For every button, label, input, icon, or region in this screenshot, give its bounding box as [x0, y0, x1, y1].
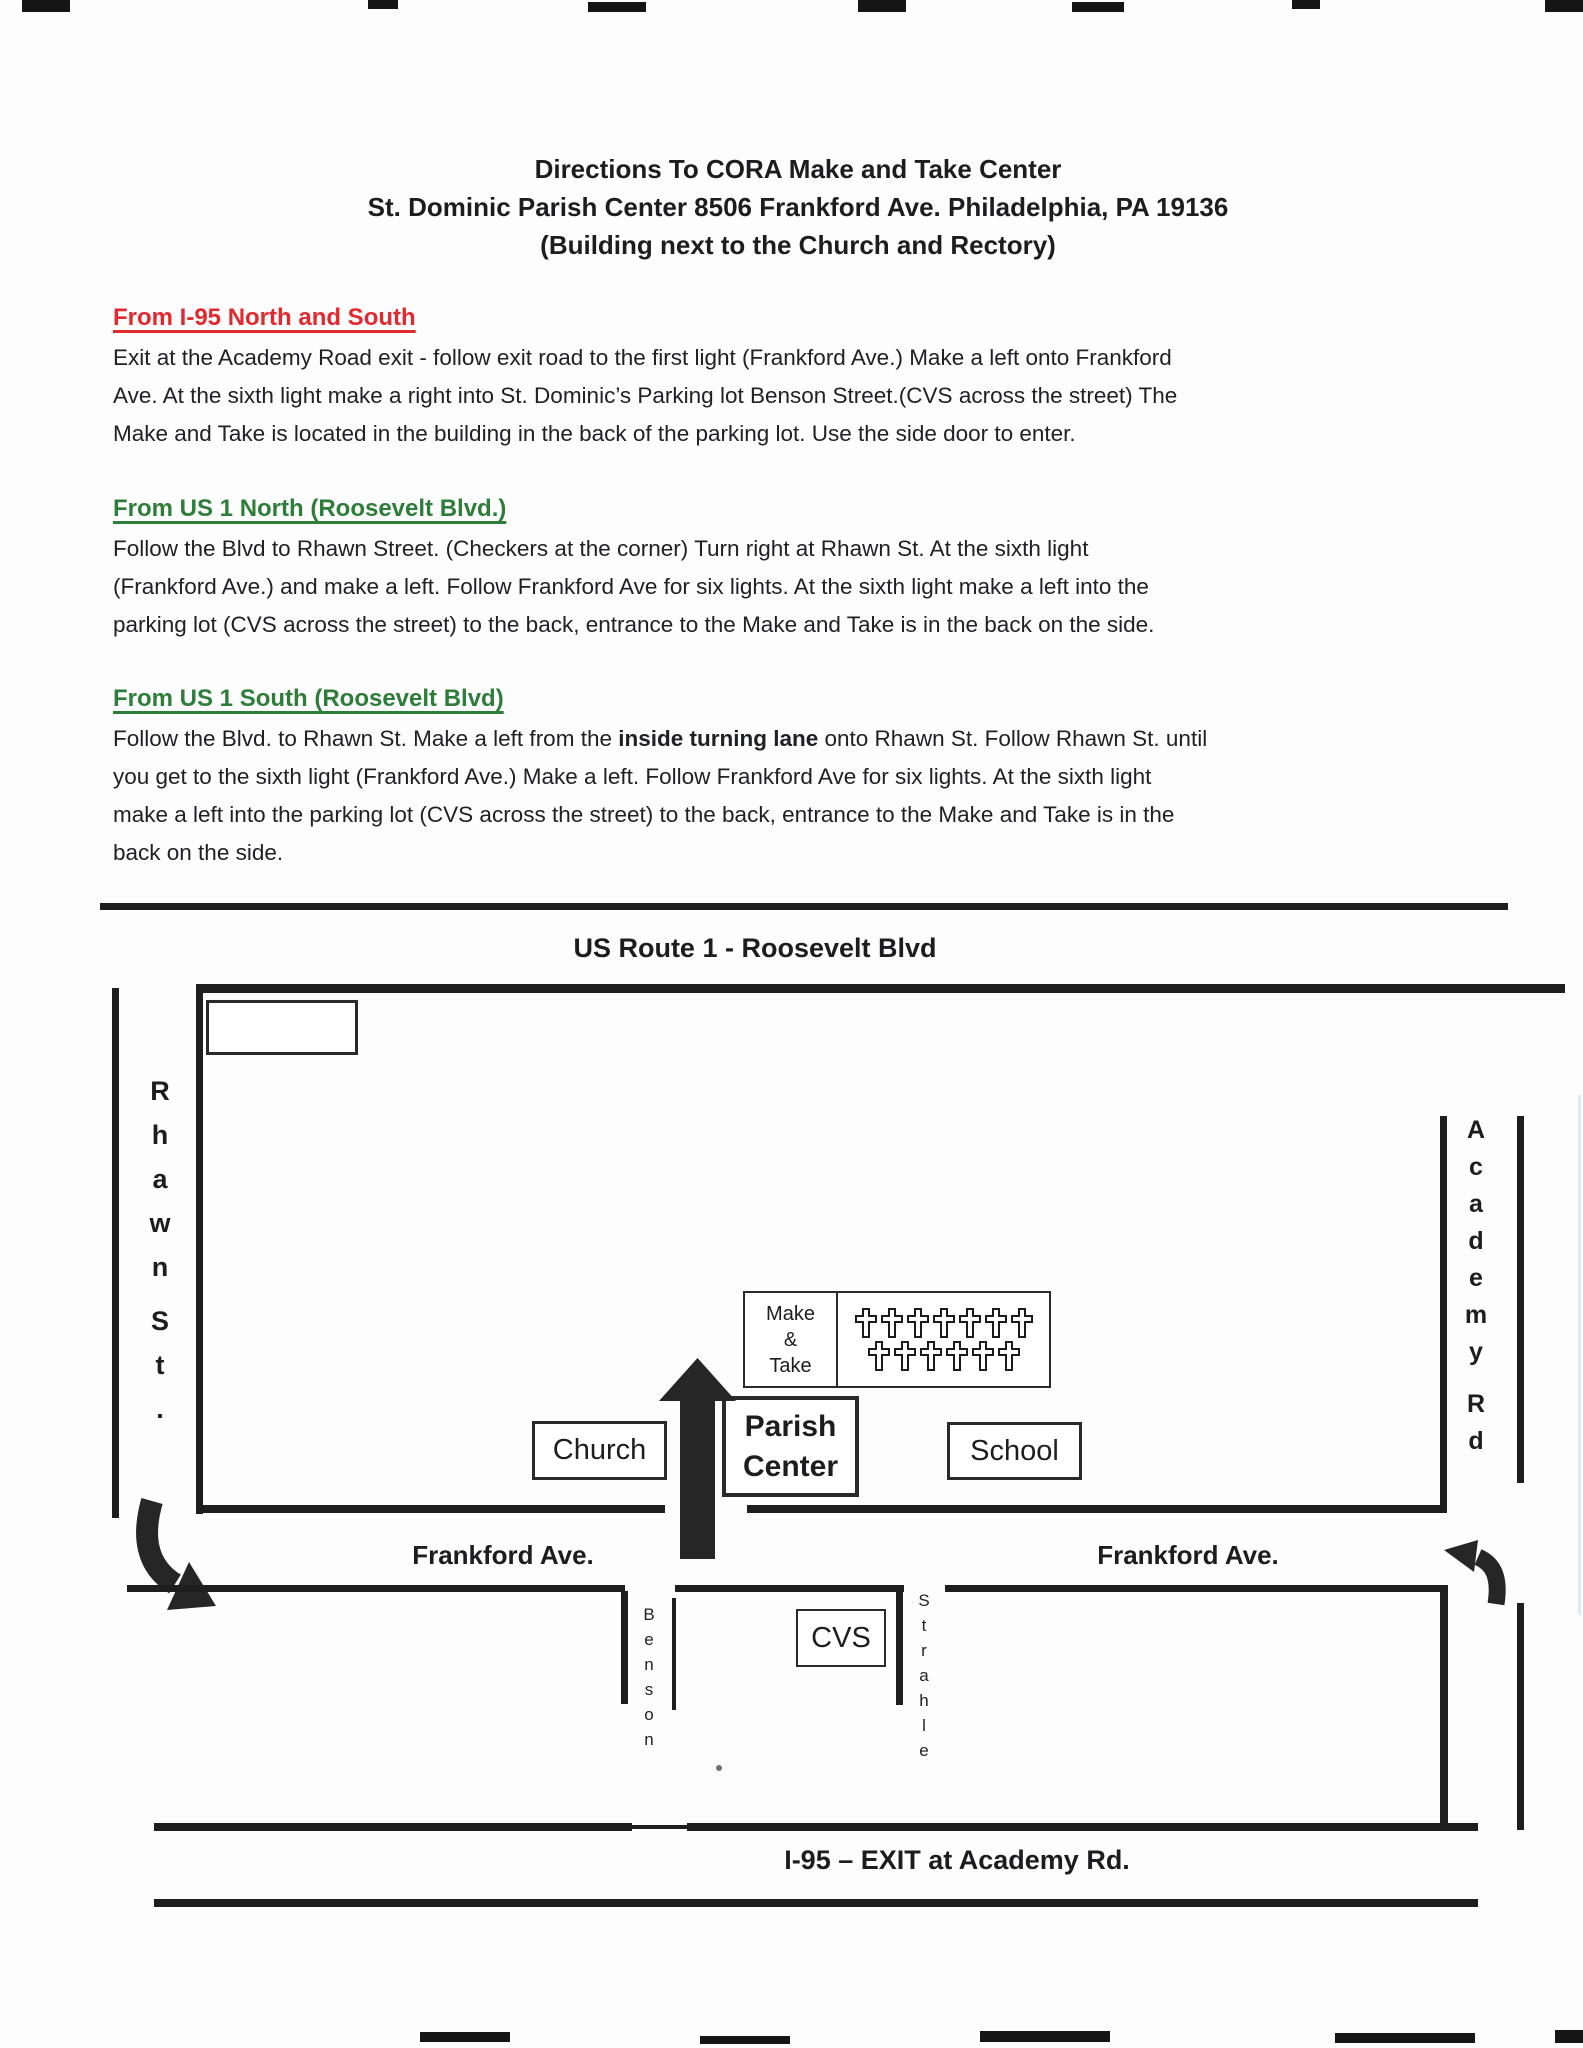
section-heading-us1-south: From US 1 South (Roosevelt Blvd) [113, 684, 1513, 714]
cross-icon [985, 1308, 1007, 1338]
scan-artifact [1292, 0, 1320, 9]
cross-icon [946, 1341, 968, 1371]
direction-text-line: you get to the sixth light (Frankford Av… [113, 758, 1513, 796]
direction-text-line: make a left into the parking lot (CVS ac… [113, 796, 1513, 834]
scan-artifact [22, 0, 70, 12]
cross-icon [959, 1308, 981, 1338]
lot-bottom-border-right [747, 1505, 1447, 1513]
make-take-label-3: Take [766, 1353, 815, 1379]
frankford-road-left [127, 1585, 625, 1592]
lot-right-border [1440, 1116, 1447, 1513]
scan-artifact [1555, 2030, 1583, 2043]
direction-text-line: (Frankford Ave.) and make a left. Follow… [113, 568, 1513, 606]
school-building: School [947, 1422, 1082, 1480]
cross-icon [972, 1341, 994, 1371]
rhawn-st-road-line [112, 988, 119, 1518]
cross-icon [855, 1308, 877, 1338]
cvs-label: CVS [811, 1622, 871, 1655]
direction-text-line: Exit at the Academy Road exit - follow e… [113, 339, 1513, 377]
entrance-up-arrow [659, 1358, 736, 1559]
cross-icon [920, 1341, 942, 1371]
scan-artifact [420, 2032, 510, 2042]
make-take-label-2: & [766, 1327, 815, 1353]
section-body-us1-south: Follow the Blvd. to Rhawn St. Make a lef… [113, 720, 1513, 872]
benson-st-left-line [621, 1591, 628, 1704]
frankford-road-middle [675, 1585, 904, 1592]
direction-text-line: parking lot (CVS across the street) to t… [113, 606, 1513, 644]
lot-bottom-border-left [196, 1505, 665, 1513]
cross-icon [881, 1308, 903, 1338]
doc-title-line-1: Directions To CORA Make and Take Center [110, 150, 1486, 188]
scan-artifact [858, 0, 906, 12]
benson-st-label: Benson [636, 1606, 662, 1748]
make-and-take-building: Make & Take [743, 1291, 838, 1388]
make-take-label-1: Make [766, 1301, 815, 1327]
direction-text-line: Make and Take is located in the building… [113, 415, 1513, 453]
scan-artifact [700, 2036, 790, 2044]
empty-legend-box [206, 1000, 358, 1055]
scan-artifact [588, 2, 646, 12]
academy-rd-label-rd: Rd [1452, 1392, 1500, 1454]
section-heading-us1-north: From US 1 North (Roosevelt Blvd.) [113, 494, 1513, 524]
section-us1-north: From US 1 North (Roosevelt Blvd.) Follow… [113, 494, 1513, 644]
lot-top-border [196, 984, 1565, 993]
frankford-ave-label-right: Frankford Ave. [1038, 1540, 1338, 1571]
cvs-building: CVS [796, 1609, 886, 1667]
doc-title-line-2: St. Dominic Parish Center 8506 Frankford… [110, 188, 1486, 226]
section-body-us1-north: Follow the Blvd to Rhawn Street. (Checke… [113, 530, 1513, 644]
i95-exit-label: I-95 – EXIT at Academy Rd. [607, 1845, 1307, 1876]
frankford-road-right [945, 1585, 1447, 1592]
cross-icon [894, 1341, 916, 1371]
strahle-st-label: Strahle [911, 1592, 937, 1759]
direction-text-line: back on the side. [113, 834, 1513, 872]
scan-artifact [368, 0, 398, 9]
scan-artifact [1545, 0, 1583, 12]
i95-top-line-left [154, 1823, 632, 1831]
map-divider-rule [100, 903, 1508, 910]
section-heading-i95: From I-95 North and South [113, 303, 1513, 333]
i95-bottom-line [154, 1899, 1478, 1907]
cross-icon [998, 1341, 1020, 1371]
scan-artifact [1072, 2, 1124, 12]
cemetery-crosses-box [836, 1291, 1051, 1388]
direction-text-line: Follow the Blvd to Rhawn Street. (Checke… [113, 530, 1513, 568]
i95-top-line-right [687, 1823, 1478, 1831]
rhawn-st-label: Rhawn [136, 1078, 184, 1281]
academy-road-left-lower [1440, 1585, 1448, 1830]
cross-icon [933, 1308, 955, 1338]
cross-icon [868, 1341, 890, 1371]
lot-left-border [196, 984, 203, 1514]
scan-artifact [980, 2031, 1110, 2042]
rhawn-turn-arrow [130, 1496, 225, 1621]
school-label: School [970, 1435, 1059, 1468]
cross-icon [907, 1308, 929, 1338]
academy-turn-arrow [1440, 1538, 1510, 1608]
academy-road-right-lower [1517, 1603, 1524, 1830]
rhawn-st-label-st: St. [136, 1308, 184, 1423]
parish-center-label-2: Center [743, 1447, 838, 1487]
academy-rd-road-line [1517, 1116, 1524, 1483]
i95-top-line-notch [632, 1825, 687, 1829]
scan-streak [1578, 1095, 1581, 1615]
direction-text-line: Ave. At the sixth light make a right int… [113, 377, 1513, 415]
academy-rd-label: Academy [1452, 1118, 1500, 1365]
section-i95: From I-95 North and South Exit at the Ac… [113, 303, 1513, 453]
scan-artifact [1335, 2033, 1475, 2043]
parish-center-label-1: Parish [743, 1407, 838, 1447]
section-body-i95: Exit at the Academy Road exit - follow e… [113, 339, 1513, 453]
benson-st-right-line [672, 1598, 676, 1710]
direction-text-line: Follow the Blvd. to Rhawn St. Make a lef… [113, 720, 1513, 758]
roosevelt-blvd-label: US Route 1 - Roosevelt Blvd [155, 933, 1355, 964]
cross-icon [1011, 1308, 1033, 1338]
church-label: Church [553, 1434, 647, 1467]
strahle-st-line [896, 1590, 903, 1705]
scanned-directions-page: Directions To CORA Make and Take Center … [0, 0, 1583, 2048]
scan-speck [716, 1765, 722, 1771]
parish-center-building: Parish Center [722, 1396, 859, 1497]
section-us1-south: From US 1 South (Roosevelt Blvd) Follow … [113, 684, 1513, 872]
church-building: Church [532, 1421, 667, 1480]
doc-title-line-3: (Building next to the Church and Rectory… [110, 226, 1486, 264]
cross-symbols [855, 1308, 1033, 1371]
frankford-ave-label-left: Frankford Ave. [353, 1540, 653, 1571]
